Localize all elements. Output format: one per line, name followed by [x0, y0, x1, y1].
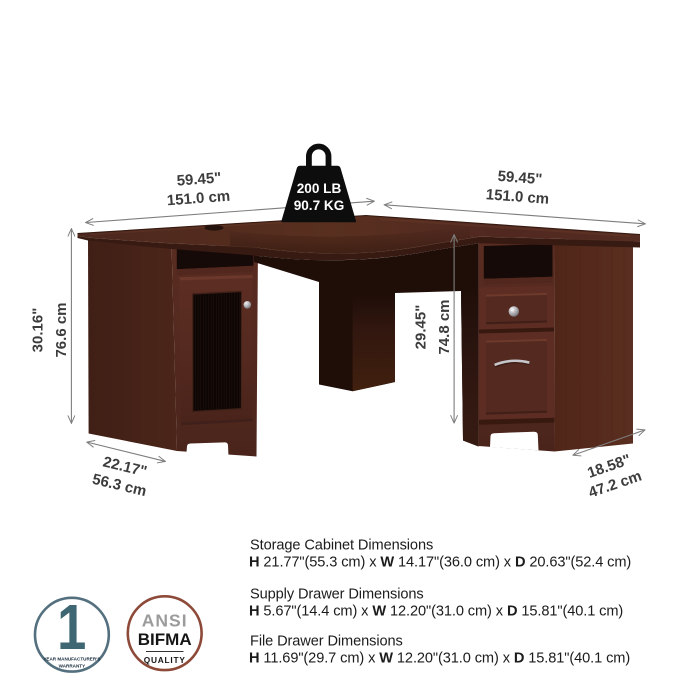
svg-text:59.45": 59.45" — [497, 168, 543, 188]
svg-text:Supply Drawer Dimensions: Supply Drawer Dimensions — [250, 587, 424, 603]
svg-text:59.45": 59.45" — [176, 169, 222, 189]
svg-text:Storage Cabinet Dimensions: Storage Cabinet Dimensions — [250, 538, 433, 554]
svg-text:H 21.77"(55.3 cm) x W 14.17"(3: H 21.77"(55.3 cm) x W 14.17"(36.0 cm) x … — [249, 555, 631, 571]
svg-text:YEAR MANUFACTURER’S: YEAR MANUFACTURER’S — [43, 657, 100, 662]
svg-text:30.16": 30.16" — [30, 308, 47, 353]
svg-text:151.0 cm: 151.0 cm — [166, 188, 230, 210]
svg-text:29.45": 29.45" — [413, 305, 430, 350]
svg-text:WARRANTY: WARRANTY — [59, 664, 86, 669]
svg-text:76.6 cm: 76.6 cm — [53, 302, 70, 357]
svg-text:74.8 cm: 74.8 cm — [436, 299, 453, 354]
svg-text:H 11.69"(29.7 cm) x W 12.20"(3: H 11.69"(29.7 cm) x W 12.20"(31.0 cm) x … — [249, 651, 630, 667]
svg-text:1: 1 — [57, 592, 86, 663]
svg-text:BIFMA: BIFMA — [138, 630, 192, 649]
svg-text:ANSI: ANSI — [142, 611, 188, 631]
svg-text:151.0 cm: 151.0 cm — [485, 186, 549, 208]
svg-text:QUALITY: QUALITY — [144, 655, 186, 665]
svg-text:200 LB: 200 LB — [297, 181, 342, 196]
svg-text:H 5.67"(14.4 cm) x W 12.20"(31: H 5.67"(14.4 cm) x W 12.20"(31.0 cm) x D… — [249, 604, 623, 620]
svg-text:90.7 KG: 90.7 KG — [294, 198, 345, 213]
svg-text:File Drawer Dimensions: File Drawer Dimensions — [250, 634, 403, 650]
